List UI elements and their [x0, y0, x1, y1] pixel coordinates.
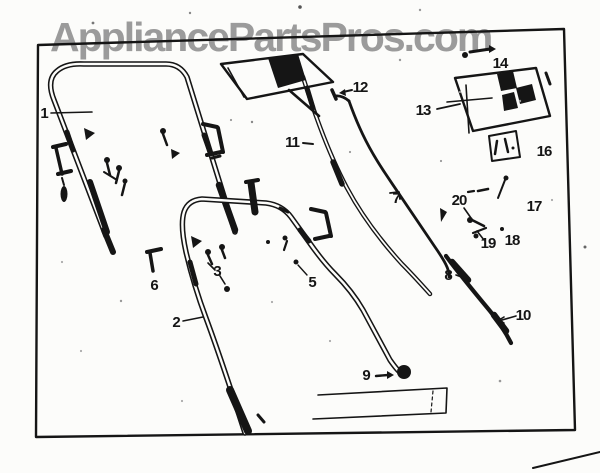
part-callout-13: 13 [416, 103, 431, 118]
part-callout-7: 7 [392, 191, 399, 206]
callout-layer: 1235678910111213141617181920 [0, 0, 600, 473]
parts-diagram-image: AppliancePartsPros.com [0, 0, 600, 473]
part-callout-18: 18 [505, 233, 520, 248]
part-callout-10: 10 [516, 308, 531, 323]
part-callout-2: 2 [172, 315, 179, 330]
part-callout-1: 1 [40, 106, 47, 121]
part-callout-19: 19 [481, 236, 496, 251]
part-callout-9: 9 [362, 368, 369, 383]
part-callout-8: 8 [444, 268, 451, 283]
part-callout-5: 5 [308, 275, 315, 290]
part-callout-12: 12 [353, 80, 368, 95]
part-callout-14: 14 [493, 56, 508, 71]
part-callout-3: 3 [213, 264, 220, 279]
part-callout-17: 17 [527, 199, 542, 214]
part-callout-16: 16 [537, 144, 552, 159]
part-callout-6: 6 [150, 278, 157, 293]
part-callout-11: 11 [285, 135, 299, 150]
part-callout-20: 20 [452, 193, 467, 208]
